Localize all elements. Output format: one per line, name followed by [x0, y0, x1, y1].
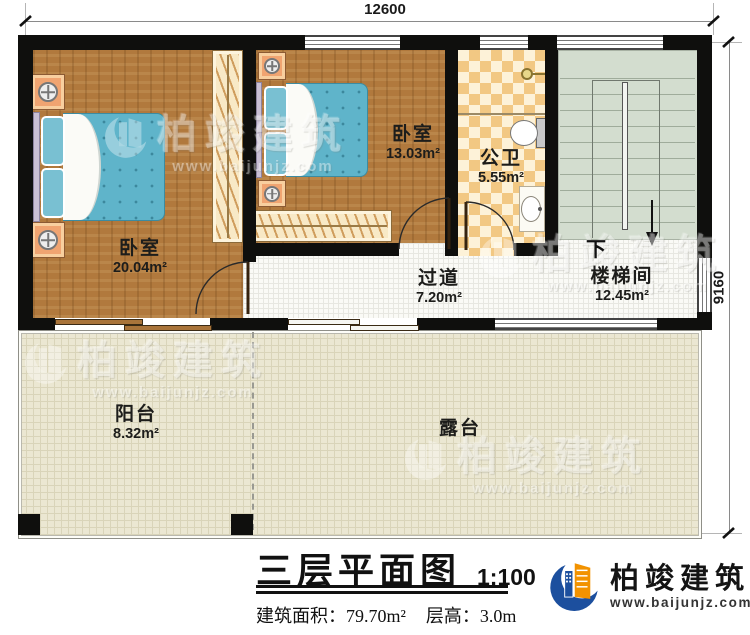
room-name: 楼梯间 [590, 266, 653, 288]
room-label-bedroom1: 卧室 20.04m² [88, 238, 192, 277]
bedroom1-pillow-1 [41, 116, 65, 166]
drawing-info-row: 建筑面积：79.70m² 层高：3.0m [256, 602, 516, 628]
top-dimension-line [25, 21, 714, 22]
shower-arm [532, 73, 545, 75]
room-name: 过道 [418, 268, 460, 290]
lamp-icon [38, 230, 58, 250]
wall-bottom-3 [417, 318, 495, 330]
room-label-bedroom2: 卧室 13.03m² [368, 124, 458, 163]
room-area: 8.32m² [113, 426, 159, 443]
wardrobe-rail [255, 225, 387, 227]
wall-bottom-1 [18, 318, 55, 330]
brand-website: www.baijunjz.com [610, 595, 750, 610]
wall-left [18, 50, 33, 330]
wall-top-1 [18, 35, 305, 50]
brand-name: 柏竣建筑 [610, 564, 750, 594]
bedroom1-sliding-door-panel-2 [124, 325, 212, 331]
brand-logo-icon [540, 556, 604, 618]
wall-bathroom-stairwell [545, 50, 558, 256]
hallway-sliding-door-panel-2 [350, 325, 419, 331]
wall-right-1 [697, 50, 712, 258]
room-area: 7.20m² [416, 290, 462, 307]
bedroom1-nightstand-bottom [31, 222, 65, 258]
bedroom1-pillow-2 [41, 168, 65, 218]
window-right [697, 258, 712, 312]
room-label-bathroom: 公卫 5.55m² [456, 148, 546, 187]
right-dimension-line [729, 42, 730, 533]
floor-height-text: 层高：3.0m [426, 602, 517, 628]
window-top-3 [557, 35, 663, 50]
lamp-icon [38, 82, 58, 102]
window-top-2 [480, 35, 528, 50]
bedroom2-nightstand-top [258, 52, 286, 80]
balcony-column-left [18, 514, 40, 535]
stair-center-rail [622, 82, 628, 230]
wall-bedroom1-hallway-stub [243, 243, 256, 262]
title-underline [256, 585, 508, 594]
lamp-icon [264, 58, 280, 74]
room-label-terrace: 露台 [418, 418, 502, 440]
room-name: 公卫 [480, 148, 522, 170]
bedroom2-wardrobe [250, 210, 392, 242]
top-extension-left [25, 3, 26, 35]
wardrobe-rail [227, 55, 229, 238]
bedroom2-pillow-2 [264, 132, 288, 176]
wall-top-3 [528, 35, 557, 50]
building-area-text: 建筑面积：79.70m² [256, 602, 406, 628]
top-extension-right [713, 3, 714, 35]
brand-logo: 柏竣建筑 www.baijunjz.com [540, 556, 750, 618]
lamp-icon [264, 186, 280, 202]
balcony-terrace-divider [252, 332, 254, 530]
bedroom2-nightstand-bottom [258, 180, 286, 207]
window-bottom [495, 318, 657, 330]
balcony-column-mid [231, 514, 253, 535]
wall-bedroom1-bedroom2 [243, 50, 256, 243]
room-name: 露台 [439, 418, 481, 440]
wall-bottom-4 [657, 318, 712, 330]
wall-bedroom2-hallway [243, 243, 399, 256]
stair-direction-label: 下 [586, 233, 606, 262]
room-label-hallway: 过道 7.20m² [396, 268, 482, 307]
bedroom1-nightstand-top [31, 74, 65, 110]
floorplan-canvas: 12600 9160 [0, 0, 750, 635]
bedroom2-bed-headboard [256, 82, 262, 178]
window-top-1 [305, 35, 400, 50]
room-label-balcony: 阳台 8.32m² [86, 404, 186, 443]
room-area: 20.04m² [113, 260, 167, 277]
bathroom-partition-line [458, 113, 545, 115]
room-area: 13.03m² [386, 146, 440, 163]
room-name: 阳台 [115, 404, 157, 426]
room-area: 5.55m² [478, 170, 524, 187]
wall-top-4 [663, 35, 712, 50]
top-dimension-value: 12600 [335, 1, 435, 18]
right-extension-bottom [702, 533, 742, 534]
wall-bottom-2 [210, 318, 288, 330]
room-label-stairwell: 楼梯间 12.45m² [570, 266, 674, 305]
toilet-icon [510, 120, 538, 146]
room-name: 卧室 [392, 124, 434, 146]
room-area: 12.45m² [595, 288, 649, 305]
bedroom1-bed-headboard [33, 112, 40, 222]
room-name: 卧室 [119, 238, 161, 260]
bedroom2-pillow-1 [264, 86, 288, 130]
right-dimension-value: 9160 [711, 258, 728, 318]
bedroom1-wardrobe [212, 50, 243, 243]
wall-bathroom-hallway [514, 243, 558, 256]
brand-text-block: 柏竣建筑 www.baijunjz.com [610, 564, 750, 609]
wall-top-2 [400, 35, 480, 50]
sink-tap [538, 207, 542, 211]
